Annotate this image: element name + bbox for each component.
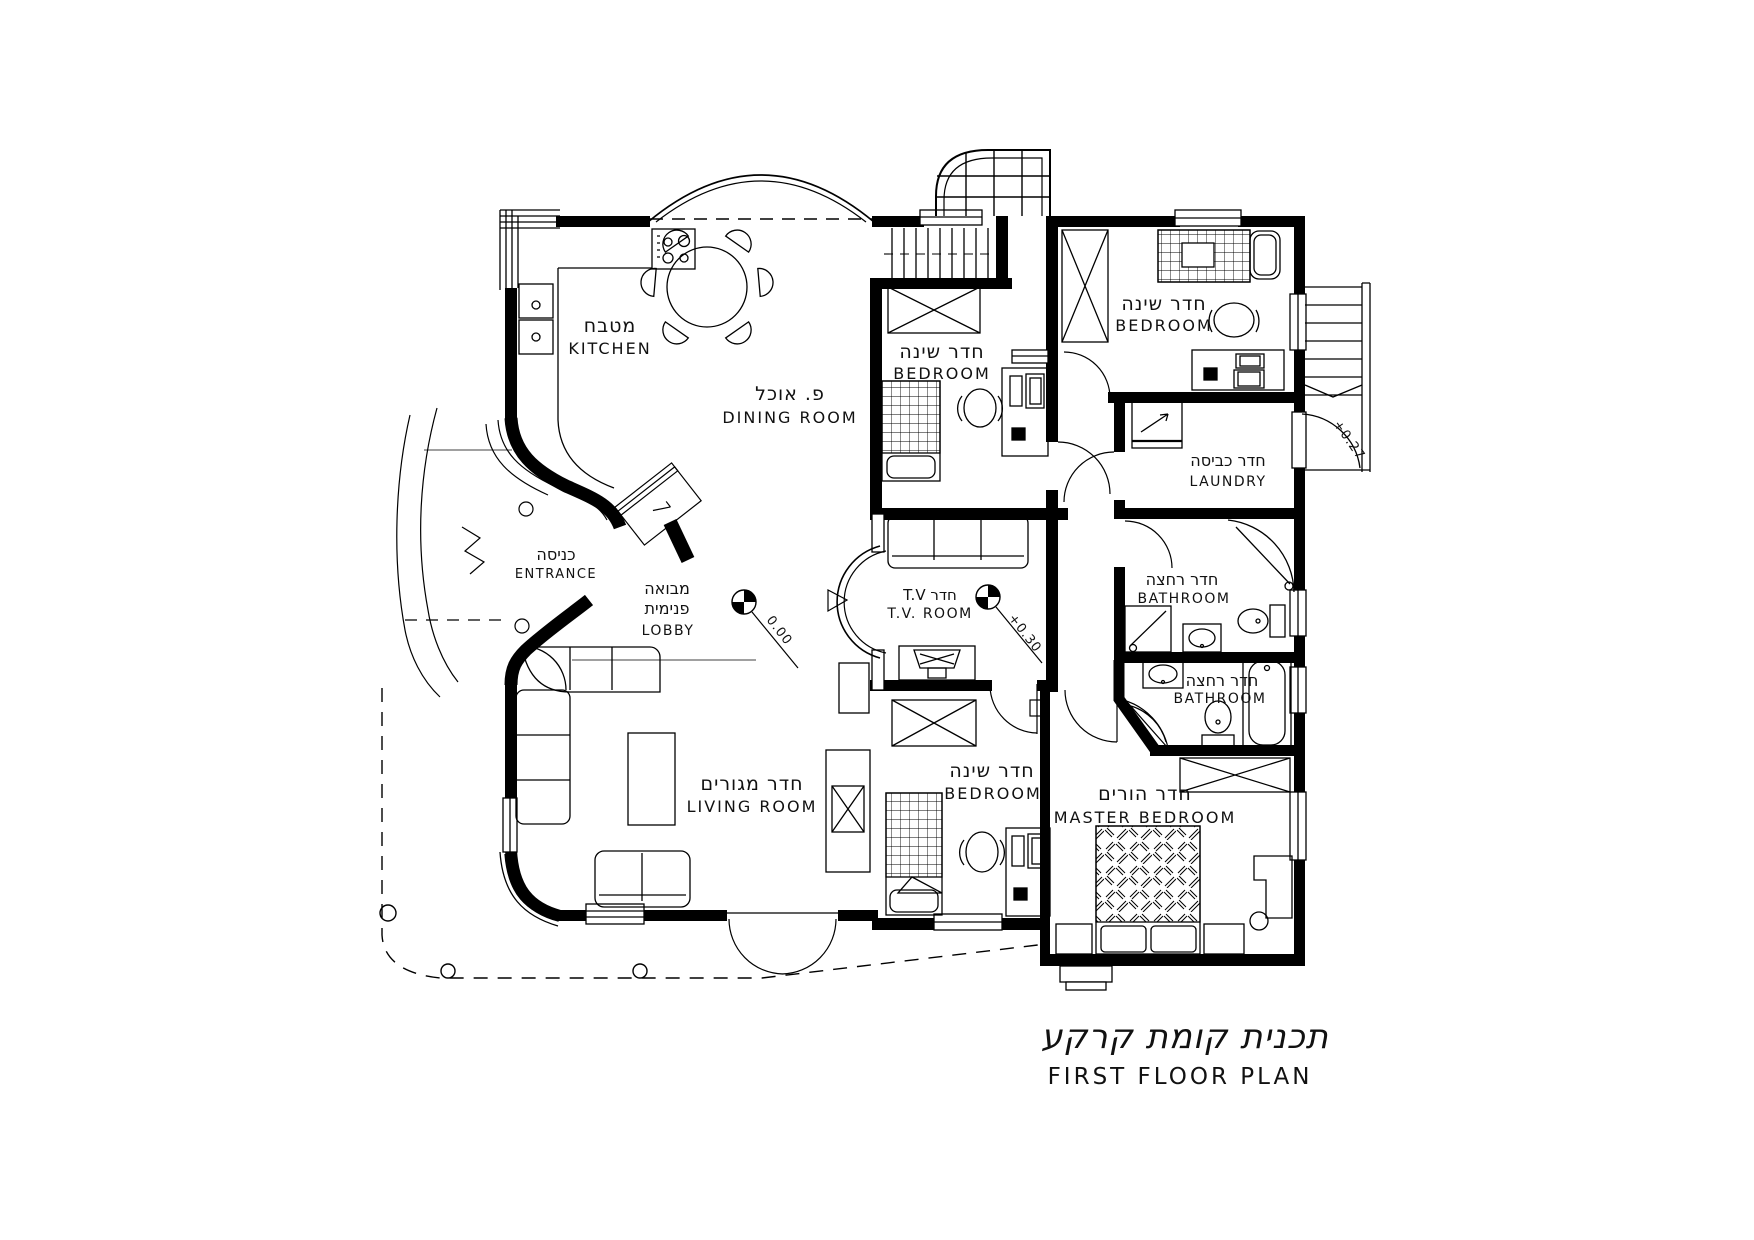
label-bedroom-bottom-en: BEDROOM <box>944 784 1042 803</box>
floor-plan-sheet: 0.00 +0.30 +0.27 מטבח KITCHEN פ. אוכל DI… <box>0 0 1754 1240</box>
interior-stair <box>884 228 1008 278</box>
label-bedroom-bottom-he: חדר שינה <box>949 760 1034 782</box>
label-bedroom-tr-en: BEDROOM <box>1115 316 1213 335</box>
kitchen-sink-2 <box>519 320 553 354</box>
label-bath-lower-he: חדר רחצה <box>1186 671 1259 690</box>
stove <box>652 229 695 269</box>
bed <box>886 793 942 877</box>
tv-cabinet <box>826 750 870 872</box>
laundry-fixtures <box>1132 402 1182 448</box>
sheet-title-english: FIRST FLOOR PLAN <box>1048 1064 1313 1090</box>
label-dining-en: DINING ROOM <box>722 408 857 427</box>
pillow <box>1101 926 1146 952</box>
laundry-door <box>1064 452 1114 502</box>
elevation-tv-room: +0.30 <box>1005 611 1044 656</box>
master-door <box>1065 690 1117 742</box>
bedroom-bottom-furniture <box>886 700 1050 916</box>
path-edge-2 <box>397 415 440 697</box>
label-laundry-he: חדר כביסה <box>1190 451 1265 470</box>
patio-boundary <box>380 688 1046 978</box>
corner-desk <box>1254 856 1292 918</box>
french-doors <box>727 913 838 974</box>
bedroom-top-right-door <box>1064 352 1110 398</box>
column <box>515 619 529 633</box>
chair <box>964 389 996 427</box>
label-bedroom-tr-he: חדר שינה <box>1121 293 1206 315</box>
label-entrance-en: ENTRANCE <box>515 567 597 582</box>
path-edge-1 <box>421 408 458 682</box>
corner-shower <box>1228 520 1294 592</box>
stool <box>1250 912 1268 930</box>
title-block: תכנית קומת קרקע FIRST FLOOR PLAN <box>1041 1017 1329 1090</box>
label-kitchen-en: KITCHEN <box>568 339 651 358</box>
nightstand <box>1204 924 1244 954</box>
label-living-en: LIVING ROOM <box>687 797 818 816</box>
sofa <box>888 516 1028 568</box>
living-room-furniture <box>516 646 870 907</box>
label-dining-he: פ. אוכל <box>755 383 825 405</box>
toilet <box>1202 701 1234 749</box>
label-tv-he: T.V חדר <box>902 586 957 604</box>
nightstand <box>1056 924 1092 954</box>
bedroom-mid-furniture <box>882 287 1048 481</box>
side-table <box>839 663 869 713</box>
label-laundry-en: LAUNDRY <box>1189 474 1266 490</box>
label-lobby-he2: פנימית <box>645 599 690 618</box>
marker-entry-level: 0.00 <box>732 590 798 668</box>
bed-blanket <box>1096 826 1200 922</box>
landing-door-opening <box>1292 412 1306 468</box>
coffee-table <box>628 733 675 825</box>
hall-closet <box>615 463 701 545</box>
label-bath-lower-en: BATHROOM <box>1173 691 1266 707</box>
kitchen-fixtures <box>519 229 695 488</box>
label-kitchen-he: מטבח <box>584 315 637 337</box>
label-master-en: MASTER BEDROOM <box>1054 808 1237 827</box>
stairwell-bay-window <box>936 150 1050 216</box>
label-entrance-he: כניסה <box>536 545 575 564</box>
corner-window-top-left <box>500 210 560 290</box>
label-bedroom-mid-he: חדר שינה <box>899 341 984 363</box>
label-bedroom-mid-en: BEDROOM <box>893 364 991 383</box>
floor-plan-drawing: 0.00 +0.30 +0.27 מטבח KITCHEN פ. אוכל DI… <box>0 0 1754 1240</box>
column-zigzag <box>462 527 484 574</box>
dining-arch-bay <box>648 175 874 222</box>
label-lobby-he1: מבואה <box>644 579 690 598</box>
corner-sofa <box>516 646 660 824</box>
pillow <box>1151 926 1196 952</box>
label-master-he: חדר הורים <box>1098 783 1192 805</box>
tv-room-bow-wall <box>828 546 886 658</box>
tv-table <box>899 646 975 680</box>
marker-tv-level: +0.30 <box>976 585 1044 663</box>
toilet <box>1238 605 1285 637</box>
column <box>519 502 533 516</box>
label-bath-upper-en: BATHROOM <box>1137 591 1230 607</box>
sheet-title-hebrew: תכנית קומת קרקע <box>1041 1017 1329 1057</box>
label-living-he: חדר מגורים <box>700 773 803 795</box>
label-lobby-en: LOBBY <box>642 623 695 639</box>
bathroom-upper-door <box>1125 521 1172 568</box>
bed <box>882 381 940 453</box>
label-tv-en: T.V. ROOM <box>886 606 972 622</box>
chair <box>966 832 998 872</box>
entrance-curved-walls <box>511 418 688 916</box>
label-bath-upper-he: חדר רחצה <box>1146 570 1219 589</box>
chair <box>1214 303 1254 337</box>
loveseat <box>595 851 690 907</box>
